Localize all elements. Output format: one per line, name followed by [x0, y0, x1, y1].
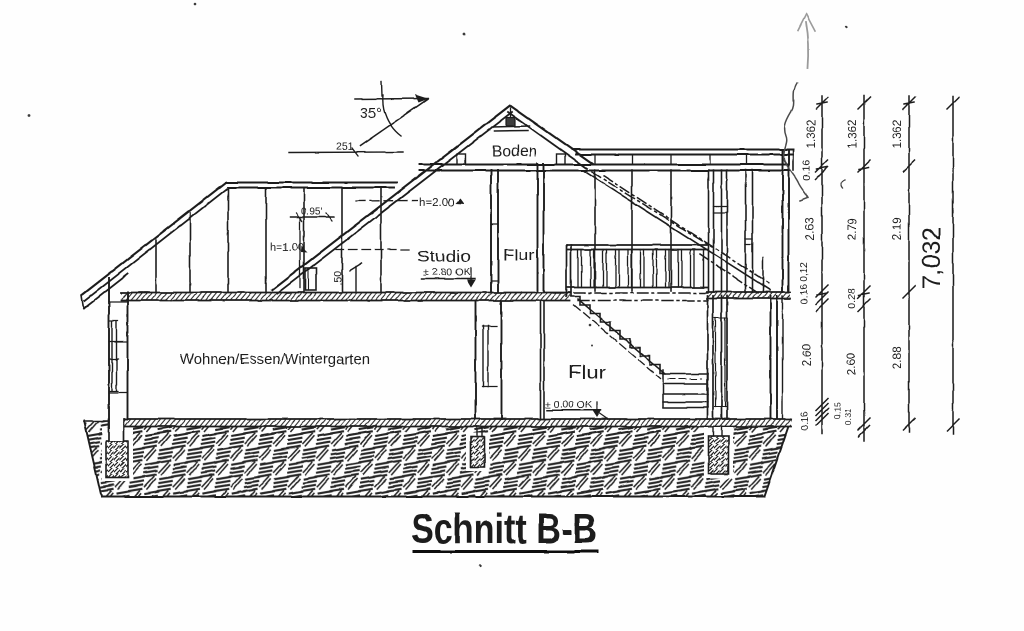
svg-text:0.16: 0.16	[801, 160, 813, 181]
svg-text:2.60: 2.60	[802, 344, 814, 366]
svg-text:0.15: 0.15	[832, 402, 842, 419]
svg-text:1.362: 1.362	[806, 120, 818, 149]
svg-text:0.16 0,12: 0.16 0,12	[799, 262, 810, 304]
svg-text:Flur: Flur	[503, 248, 535, 265]
svg-text:35°: 35°	[360, 106, 382, 122]
svg-text:± 0.00 OK: ± 0.00 OK	[545, 399, 592, 411]
svg-text:h=1.00: h=1.00	[270, 242, 304, 254]
svg-text:.50: .50	[332, 270, 344, 285]
svg-text:Wohnen/Essen/Wintergarten: Wohnen/Essen/Wintergarten	[180, 351, 370, 368]
svg-text:0.28: 0.28	[846, 288, 858, 309]
svg-text:0.31: 0.31	[843, 408, 853, 425]
svg-text:Boden: Boden	[492, 144, 537, 161]
svg-text:Studio: Studio	[417, 249, 471, 266]
svg-text:1.362: 1.362	[847, 120, 859, 149]
svg-text:7,032: 7,032	[918, 227, 946, 290]
svg-text:1.362: 1.362	[892, 120, 904, 149]
svg-text:2.60: 2.60	[846, 353, 858, 375]
svg-text:h=2.00: h=2.00	[419, 198, 455, 210]
svg-text:0.95': 0.95'	[301, 207, 322, 218]
svg-text:2.88: 2.88	[892, 347, 904, 369]
svg-text:2.19: 2.19	[892, 218, 904, 240]
svg-text:0.16: 0.16	[800, 411, 811, 431]
svg-text:2.79: 2.79	[847, 218, 859, 240]
svg-text:± 2.80 OK: ± 2.80 OK	[423, 267, 470, 279]
svg-text:251: 251	[336, 141, 354, 153]
svg-text:Flur: Flur	[568, 363, 606, 383]
svg-text:2.63: 2.63	[805, 218, 817, 240]
svg-text:Schnitt B-B: Schnitt B-B	[411, 505, 597, 552]
